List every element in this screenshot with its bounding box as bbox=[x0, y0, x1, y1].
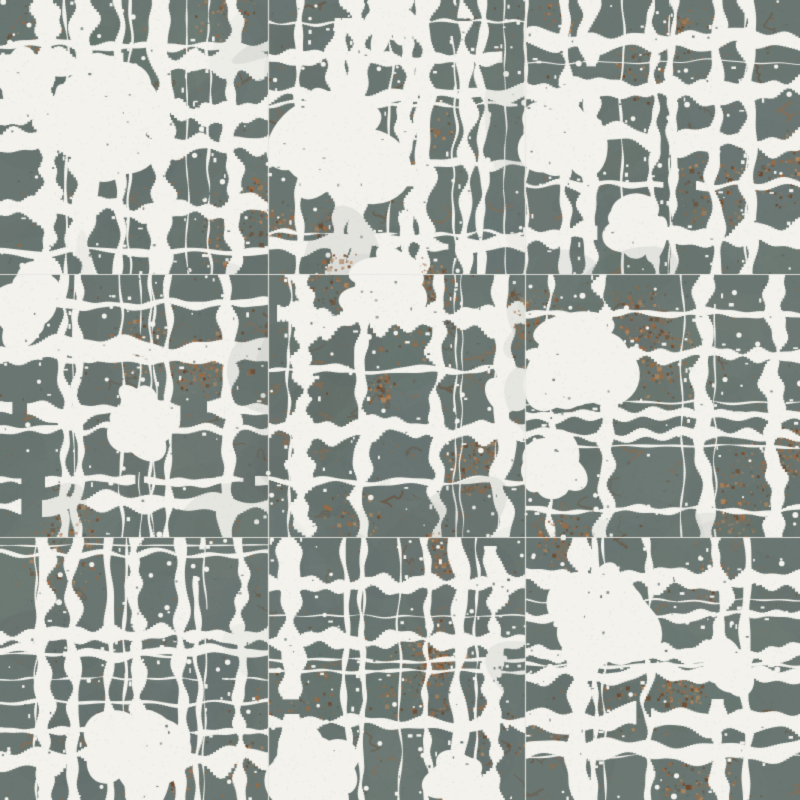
tile-pattern-canvas bbox=[0, 0, 800, 800]
tile-pattern-figure bbox=[0, 0, 800, 800]
